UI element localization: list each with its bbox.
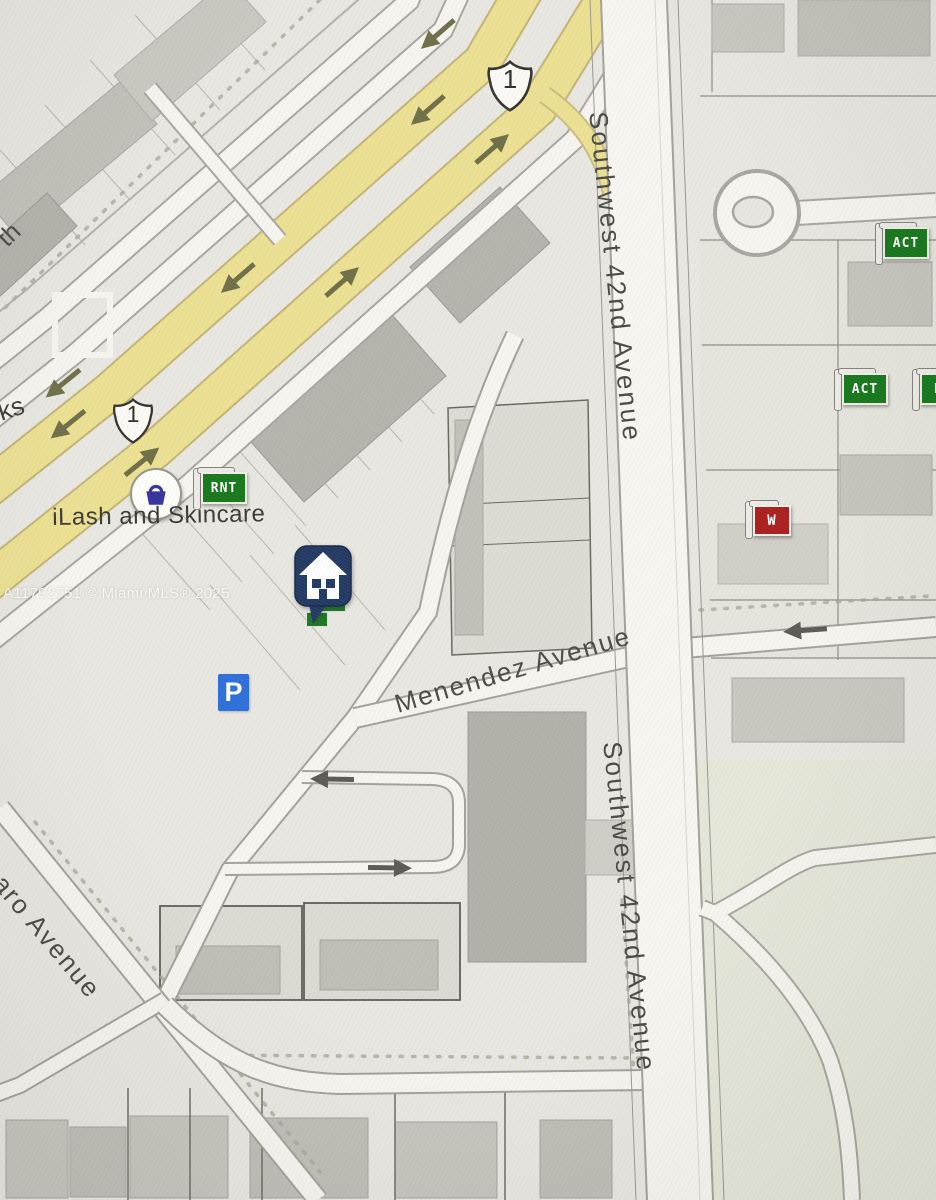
- flag-face: RNT: [201, 472, 247, 504]
- map-canvas[interactable]: Southwest 42nd Avenue Southwest 42nd Ave…: [0, 0, 936, 1200]
- route-number: 1: [484, 64, 536, 95]
- listing-flag-act-1[interactable]: ACT: [875, 220, 933, 270]
- us1-route-shield-top: 1: [484, 58, 536, 114]
- subject-property-marker[interactable]: [291, 542, 355, 626]
- flagpole-icon: [834, 369, 842, 411]
- flagpole-icon: [745, 501, 753, 539]
- parking-icon: P: [218, 674, 249, 711]
- flagpole-icon: [193, 468, 201, 510]
- flag-face: ACT: [883, 227, 929, 259]
- route-number: 1: [110, 401, 156, 428]
- listing-flag-withdrawn[interactable]: W: [745, 498, 803, 548]
- us1-route-shield-left: 1: [110, 396, 156, 446]
- flag-face: W: [753, 505, 791, 536]
- flagpole-icon: [912, 369, 920, 411]
- flag-face: RN: [920, 373, 936, 405]
- mls-watermark: A11792751 © Miami MLS® 2025: [3, 585, 230, 602]
- listing-flag-rnt[interactable]: RNT: [193, 465, 251, 515]
- listing-flag-act-2[interactable]: ACT: [834, 366, 892, 416]
- parking-letter: P: [224, 677, 242, 708]
- flag-face: ACT: [842, 373, 888, 405]
- listing-flag-rn-clipped[interactable]: RN: [912, 366, 936, 416]
- house-icon: [291, 542, 355, 626]
- flagpole-icon: [875, 223, 883, 265]
